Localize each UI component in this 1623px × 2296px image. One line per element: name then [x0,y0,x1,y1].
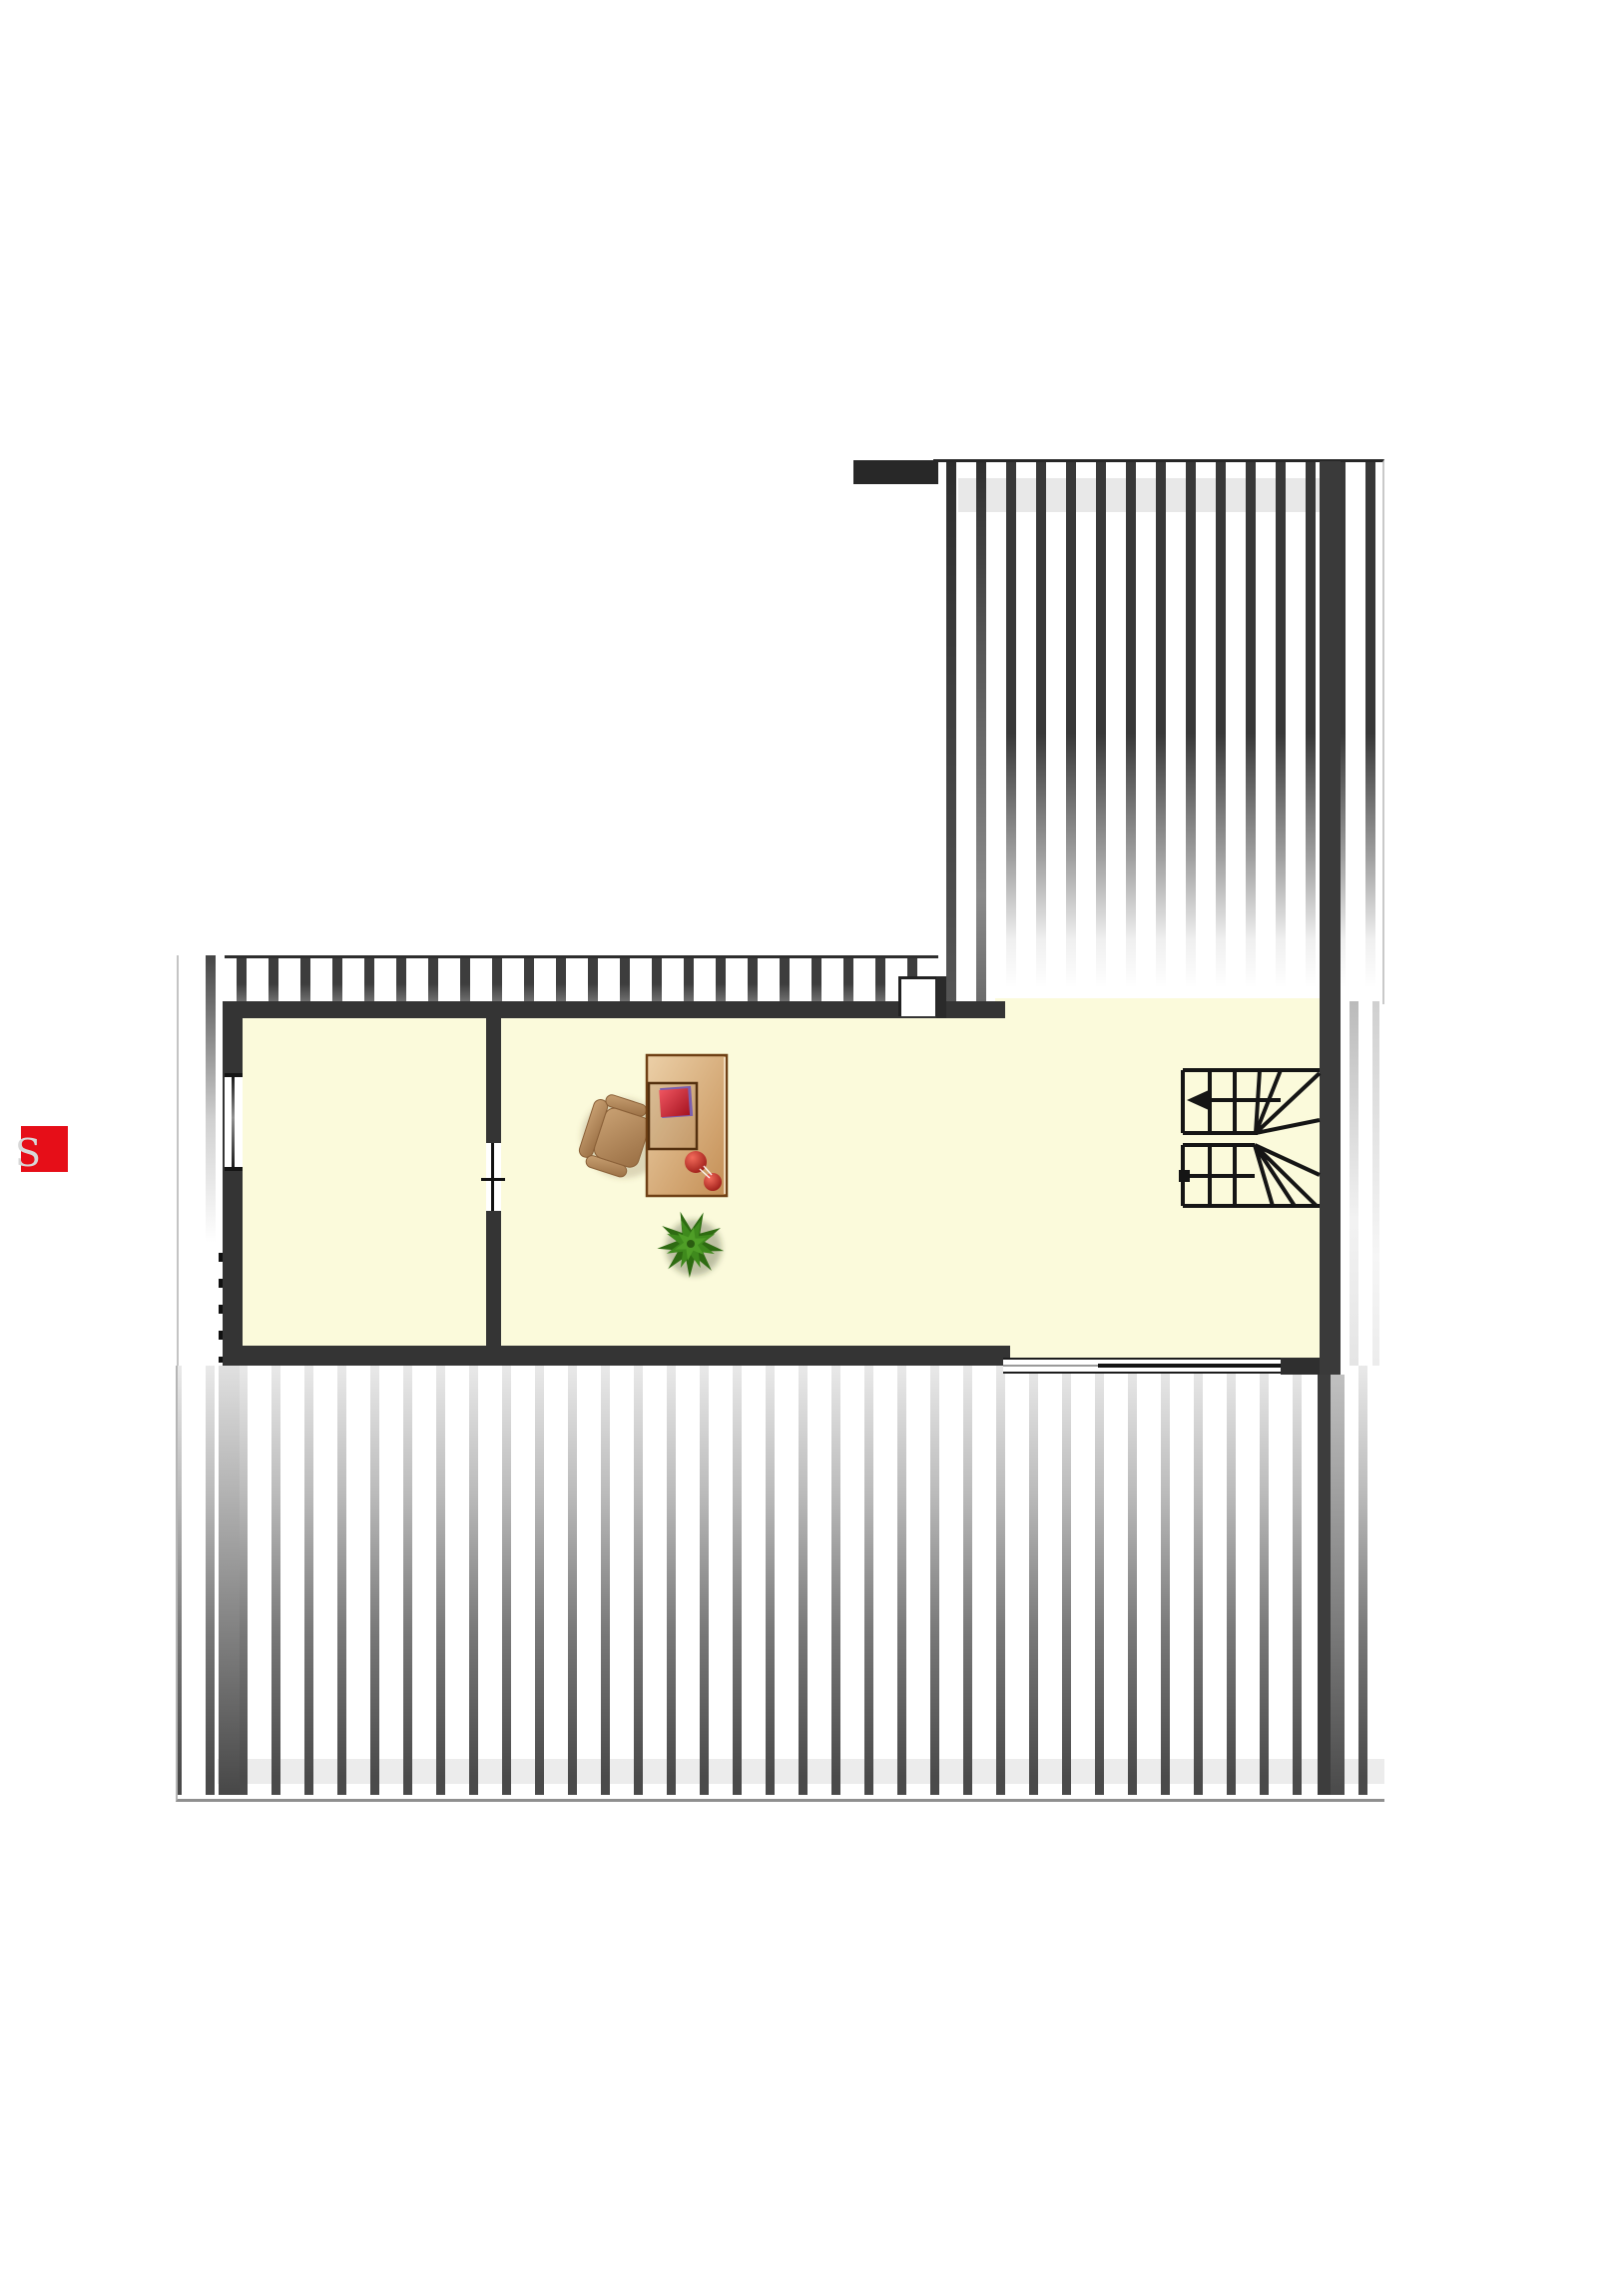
wall-bottom [223,1346,1010,1366]
roof-slope-top-right [933,459,1384,1004]
glazing-line-light [1003,1365,1099,1367]
wall-shadow-column [1331,1375,1345,1795]
roof-hatch-stripe-dark [976,462,986,1004]
glazing-line-dark [1098,1364,1281,1368]
logo-letter: S [15,1134,41,1172]
dashed-overhead-line [219,1253,223,1363]
roof-slope-right-column [1341,1001,1382,1366]
window-mullion [232,1077,235,1167]
window-left-wall [225,1073,243,1171]
wall-shadow-column [219,1366,240,1795]
wall-divider-upper [486,1016,501,1143]
room-stair-hall [995,998,1320,1360]
roof-edge-comb-band [177,955,938,1004]
window-band-bottom [1003,1358,1281,1374]
room-middle [501,1018,995,1346]
door-opening-tick [481,1178,505,1181]
roof-slope-bottom [176,1366,1384,1802]
roof-right-stripe [1372,1001,1379,1366]
attic-floor-plan: S [0,0,1623,2296]
wall-left [223,1001,243,1366]
window-band-end-block [1281,1358,1320,1375]
roof-hatch-fade [933,462,1382,1004]
room-left [243,1018,486,1346]
door-opening-line [491,1143,494,1211]
roof-hatch-fade [178,1366,1384,1799]
roof-right-stripe [1350,1001,1358,1366]
wall-right-stair [1320,461,1341,1375]
wall-right-stair-low [1318,1375,1331,1795]
roof-slope-left-column [177,955,225,1366]
roof-left-stripe [206,955,216,1366]
wall-top [223,1001,1005,1018]
wall-divider-lower [486,1211,501,1346]
window-top-wall [898,976,938,1016]
comb-soften [177,958,938,1004]
window-top-post [936,976,946,1018]
roof-hatch-stripe-dark [946,462,956,1004]
wall-stub-top [853,460,938,484]
logo-badge: S [21,1126,68,1172]
